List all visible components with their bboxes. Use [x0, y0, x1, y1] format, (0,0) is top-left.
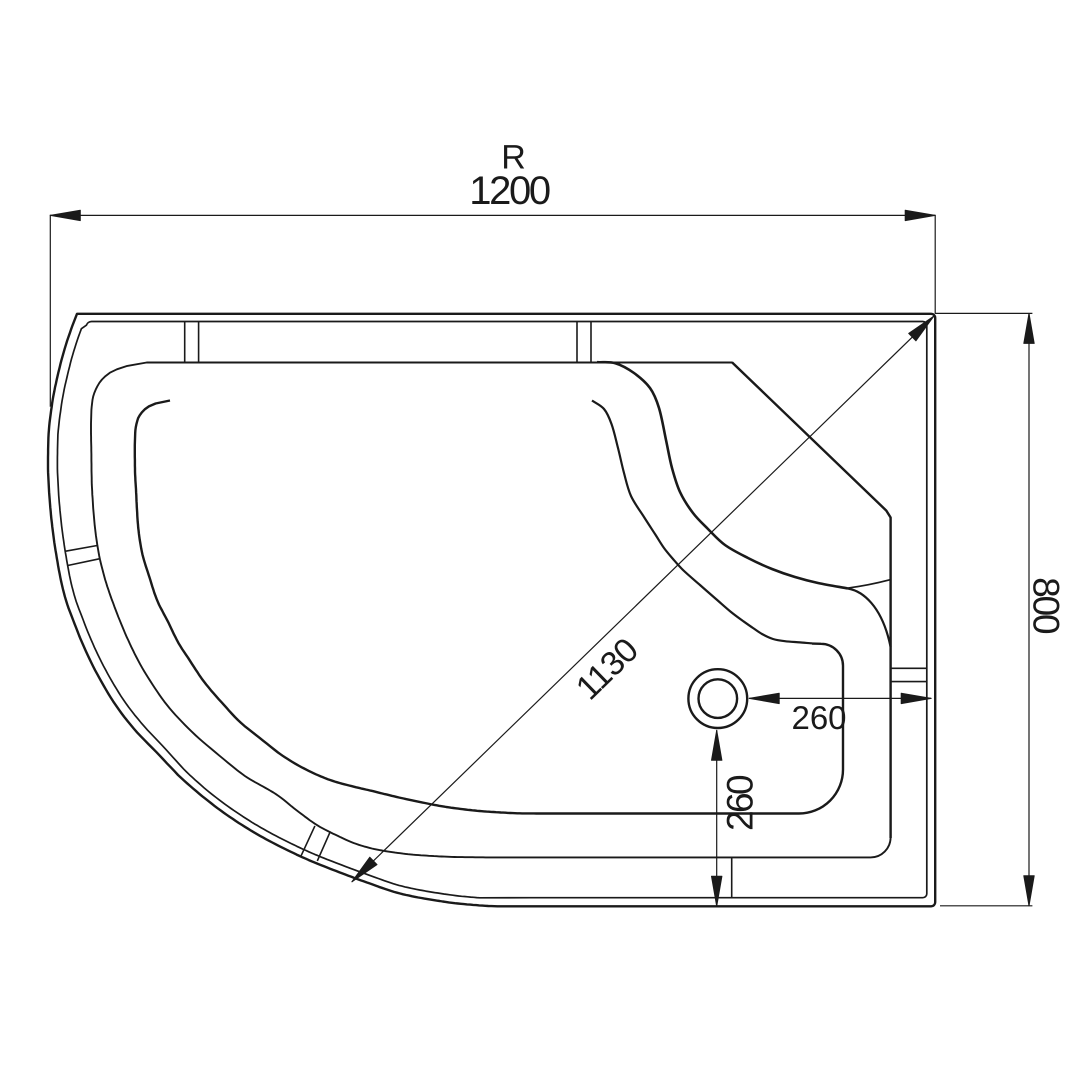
svg-text:800: 800 — [1025, 577, 1067, 634]
svg-text:260: 260 — [791, 699, 846, 736]
svg-text:1200: 1200 — [469, 169, 550, 213]
svg-text:260: 260 — [719, 775, 760, 831]
